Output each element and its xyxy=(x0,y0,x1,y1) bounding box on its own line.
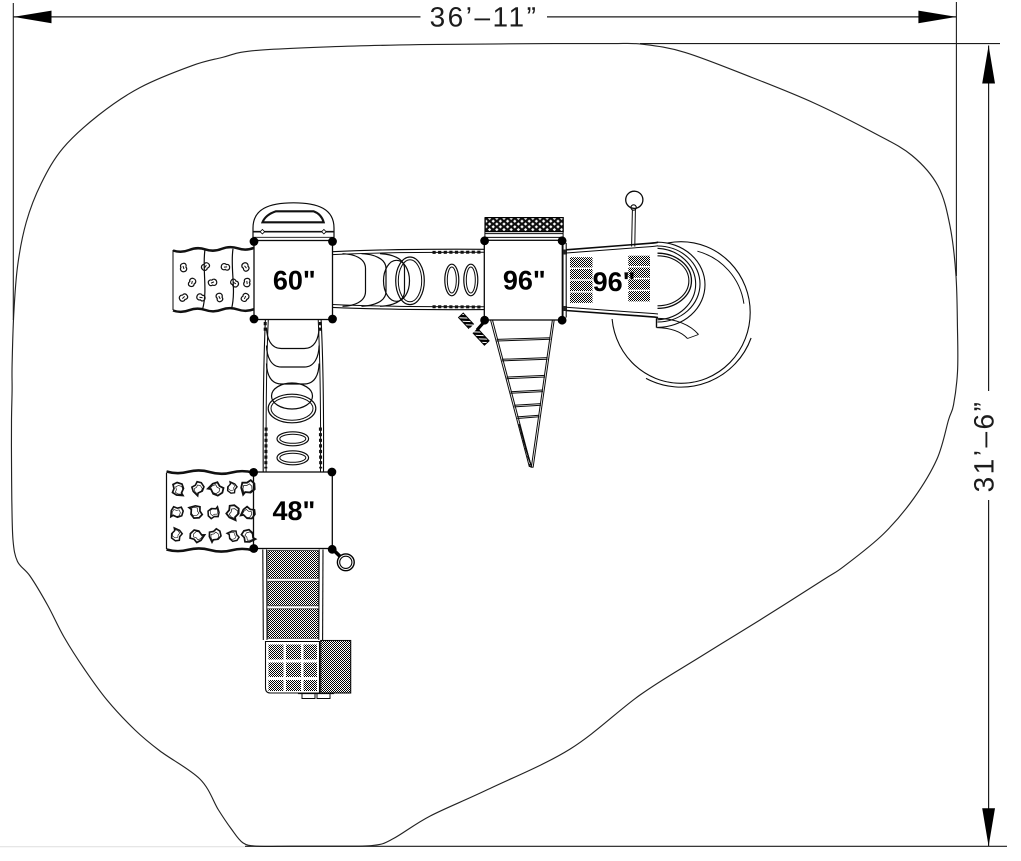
svg-text:60": 60" xyxy=(273,266,316,296)
svg-text:31’–6”: 31’–6” xyxy=(969,400,1000,493)
svg-text:96": 96" xyxy=(593,267,636,297)
svg-text:48": 48" xyxy=(272,496,315,526)
svg-text:36’–11”: 36’–11” xyxy=(430,2,539,33)
svg-text:96": 96" xyxy=(503,266,546,296)
